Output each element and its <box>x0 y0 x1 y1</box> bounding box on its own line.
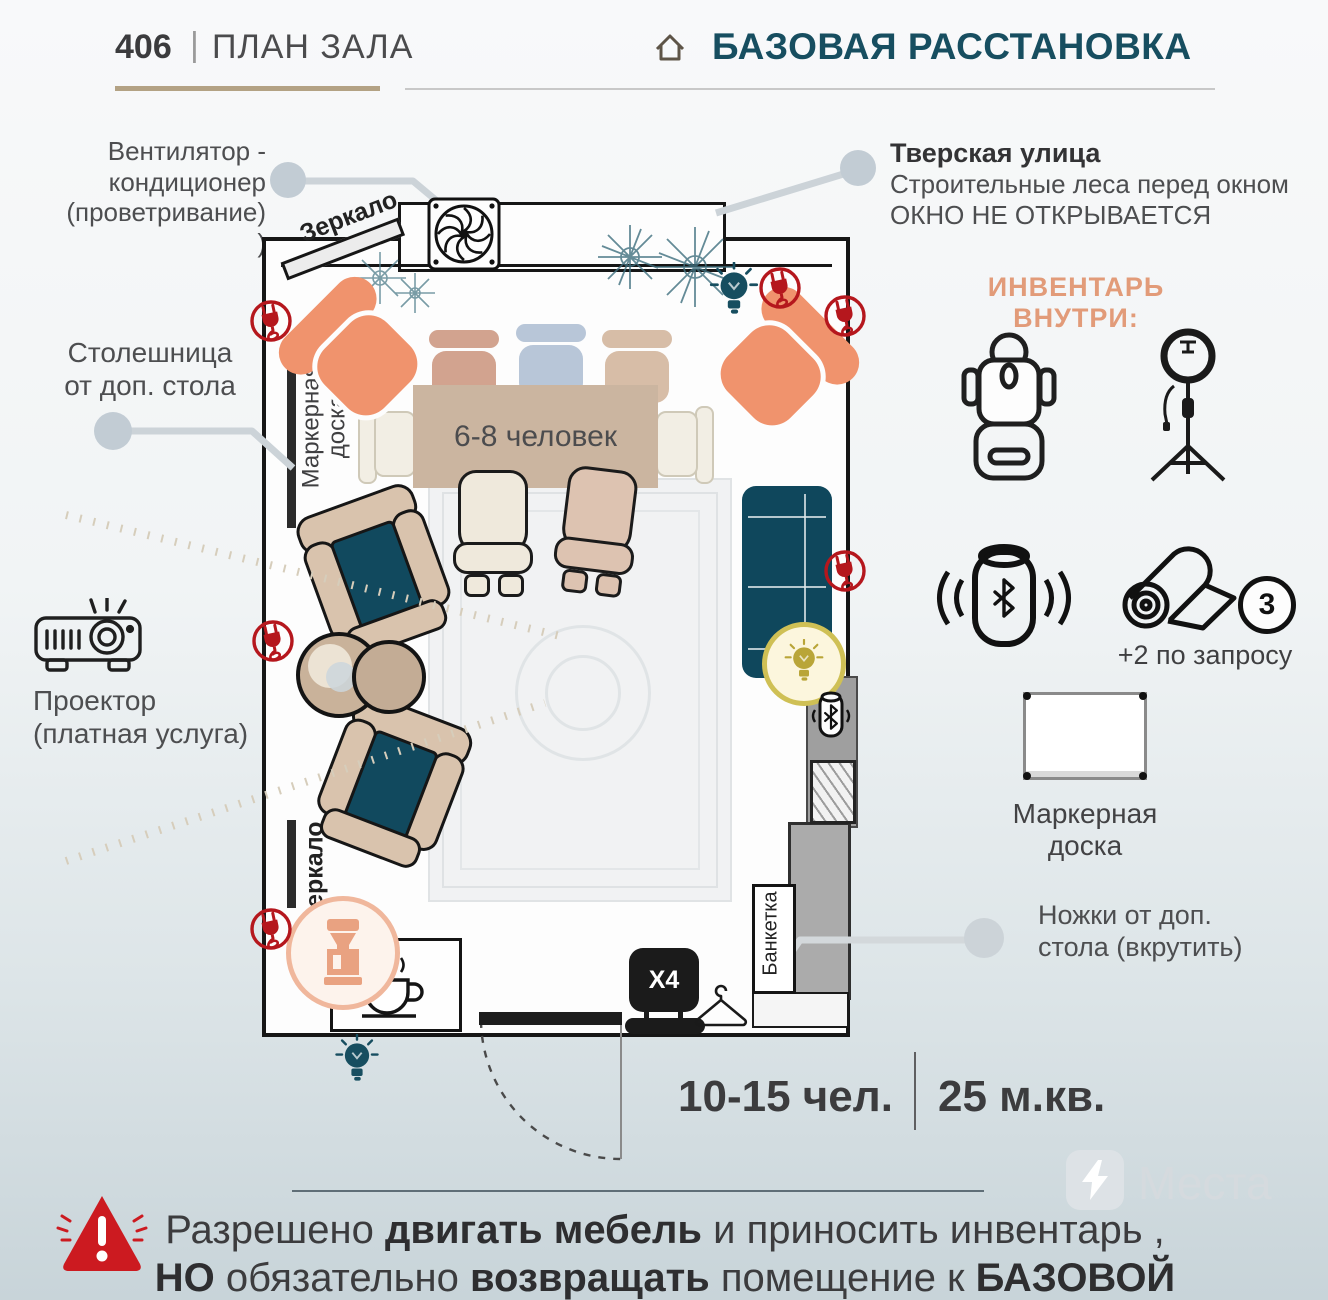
power-outlet-icon <box>757 265 803 311</box>
table-capacity-label: 6-8 человек <box>454 420 617 454</box>
hanger-icon <box>692 984 750 1028</box>
light-bulb-icon <box>334 1034 380 1090</box>
chair-back <box>429 330 499 348</box>
title-underline <box>115 86 380 91</box>
chair-foot <box>498 574 524 597</box>
stacked-chairs: X4 <box>629 948 699 1012</box>
inventory-heading: ИНВЕНТАРЬ ВНУТРИ: <box>940 272 1212 334</box>
whiteboard-icon <box>1023 692 1147 780</box>
coffee-machine-badge <box>286 896 400 1010</box>
coffee-machine-icon <box>316 917 370 989</box>
bluetooth-speaker-plan-icon <box>808 688 854 748</box>
chair-foot <box>560 568 589 594</box>
mirror-bottom <box>287 820 296 908</box>
rules-text-bold: двигать мебель <box>385 1208 702 1252</box>
chair-back <box>602 330 672 348</box>
fan-callout-label: Вентилятор - кондиционер (проветривание)… <box>58 136 266 259</box>
projector-callout-label: Проектор (платная услуга) <box>33 684 263 750</box>
street-callout: Тверская улица Строительные леса перед о… <box>890 138 1310 230</box>
house-icon <box>650 28 690 68</box>
floor-plan-infographic: 406 | ПЛАН ЗАЛА БАЗОВАЯ РАССТАНОВКА Вент… <box>0 0 1328 1300</box>
sofa-seam <box>748 516 826 518</box>
yoga-mat-icon <box>1112 536 1242 641</box>
footer-divider <box>292 1190 984 1192</box>
rules-line1: Разрешено двигать мебель и приносить инв… <box>30 1206 1300 1254</box>
tabletop-callout-label: Столешница от доп. стола <box>42 336 258 402</box>
power-outlet-icon <box>250 618 296 664</box>
watermark-logo <box>1066 1150 1124 1210</box>
chair-seat <box>656 411 698 477</box>
tabletop-callout-dot <box>94 412 132 450</box>
fan-callout-dot <box>270 162 306 198</box>
chair-seat <box>374 411 416 477</box>
radiator-box <box>810 760 856 824</box>
legs-callout-label: Ножки от доп. стола (вкрутить) <box>1038 900 1278 964</box>
power-outlet-icon <box>248 906 294 952</box>
chair-foot <box>594 572 623 598</box>
door-leaf <box>479 1012 622 1025</box>
whiteboard-corner <box>1023 692 1031 700</box>
capacity-stat: 10-15 чел. <box>678 1072 893 1122</box>
subtitle-underline <box>405 88 1215 90</box>
dining-chair-side <box>658 406 714 480</box>
ring-light-icon <box>1130 328 1240 486</box>
light-bulb-icon <box>708 262 760 324</box>
lightning-icon <box>1078 1158 1112 1202</box>
rules-text: Разрешено двигать мебель и приносить инв… <box>30 1206 1300 1300</box>
street-title: Тверская улица <box>890 138 1310 169</box>
bench-label: Банкетка <box>760 879 783 989</box>
header-separator: | <box>190 26 199 65</box>
page-title: ПЛАН ЗАЛА <box>212 28 413 67</box>
yoga-mat-note: +2 по запросу <box>1100 640 1310 671</box>
street-callout-dot <box>840 150 876 186</box>
rules-text-bold: НО <box>155 1256 215 1300</box>
power-outlet-icon <box>822 293 868 339</box>
wardrobe <box>788 822 851 1000</box>
chair-foot <box>464 574 490 597</box>
whiteboard-corner <box>1023 772 1031 780</box>
watermark-text: Места <box>1138 1156 1272 1210</box>
wardrobe-step <box>752 992 849 1028</box>
rules-text-segment: обязательно <box>215 1256 470 1300</box>
dining-chair-bottom <box>458 470 528 596</box>
rug-medallion <box>545 655 621 731</box>
projector-icon <box>33 598 148 678</box>
whiteboard-corner <box>1139 772 1147 780</box>
fan-icon <box>426 196 502 272</box>
stats-divider <box>914 1052 916 1130</box>
rules-line2: НО обязательно возвращать помещение к БА… <box>30 1254 1300 1300</box>
chair-back <box>453 542 533 574</box>
sofa-seam <box>748 586 826 588</box>
legs-callout-dot <box>964 918 1004 958</box>
yoga-mat-count-badge: 3 <box>1238 576 1296 634</box>
power-outlet-icon <box>822 548 868 594</box>
chair-back <box>516 324 586 342</box>
subtitle: БАЗОВАЯ РАССТАНОВКА <box>712 26 1192 68</box>
pouf <box>352 640 426 714</box>
street-line1: Строительные леса перед окном <box>890 169 1310 200</box>
room-number: 406 <box>115 28 172 67</box>
rules-text-segment: и приносить инвентарь , <box>702 1208 1165 1252</box>
whiteboard-label: Маркерная доска <box>1000 798 1170 862</box>
rules-text-segment: помещение к <box>710 1256 976 1300</box>
bluetooth-speaker-icon <box>928 540 1078 655</box>
power-outlet-icon <box>248 298 294 344</box>
stacked-chairs-label: X4 <box>649 966 680 995</box>
rules-text-segment: Разрешено <box>165 1208 385 1252</box>
whiteboard-corner <box>1139 692 1147 700</box>
area-stat: 25 м.кв. <box>938 1072 1105 1122</box>
street-line2: ОКНО НЕ ОТКРЫВАЕТСЯ <box>890 200 1310 231</box>
rules-text-bold: возвращать <box>470 1256 710 1300</box>
massage-chair-icon <box>952 330 1067 485</box>
